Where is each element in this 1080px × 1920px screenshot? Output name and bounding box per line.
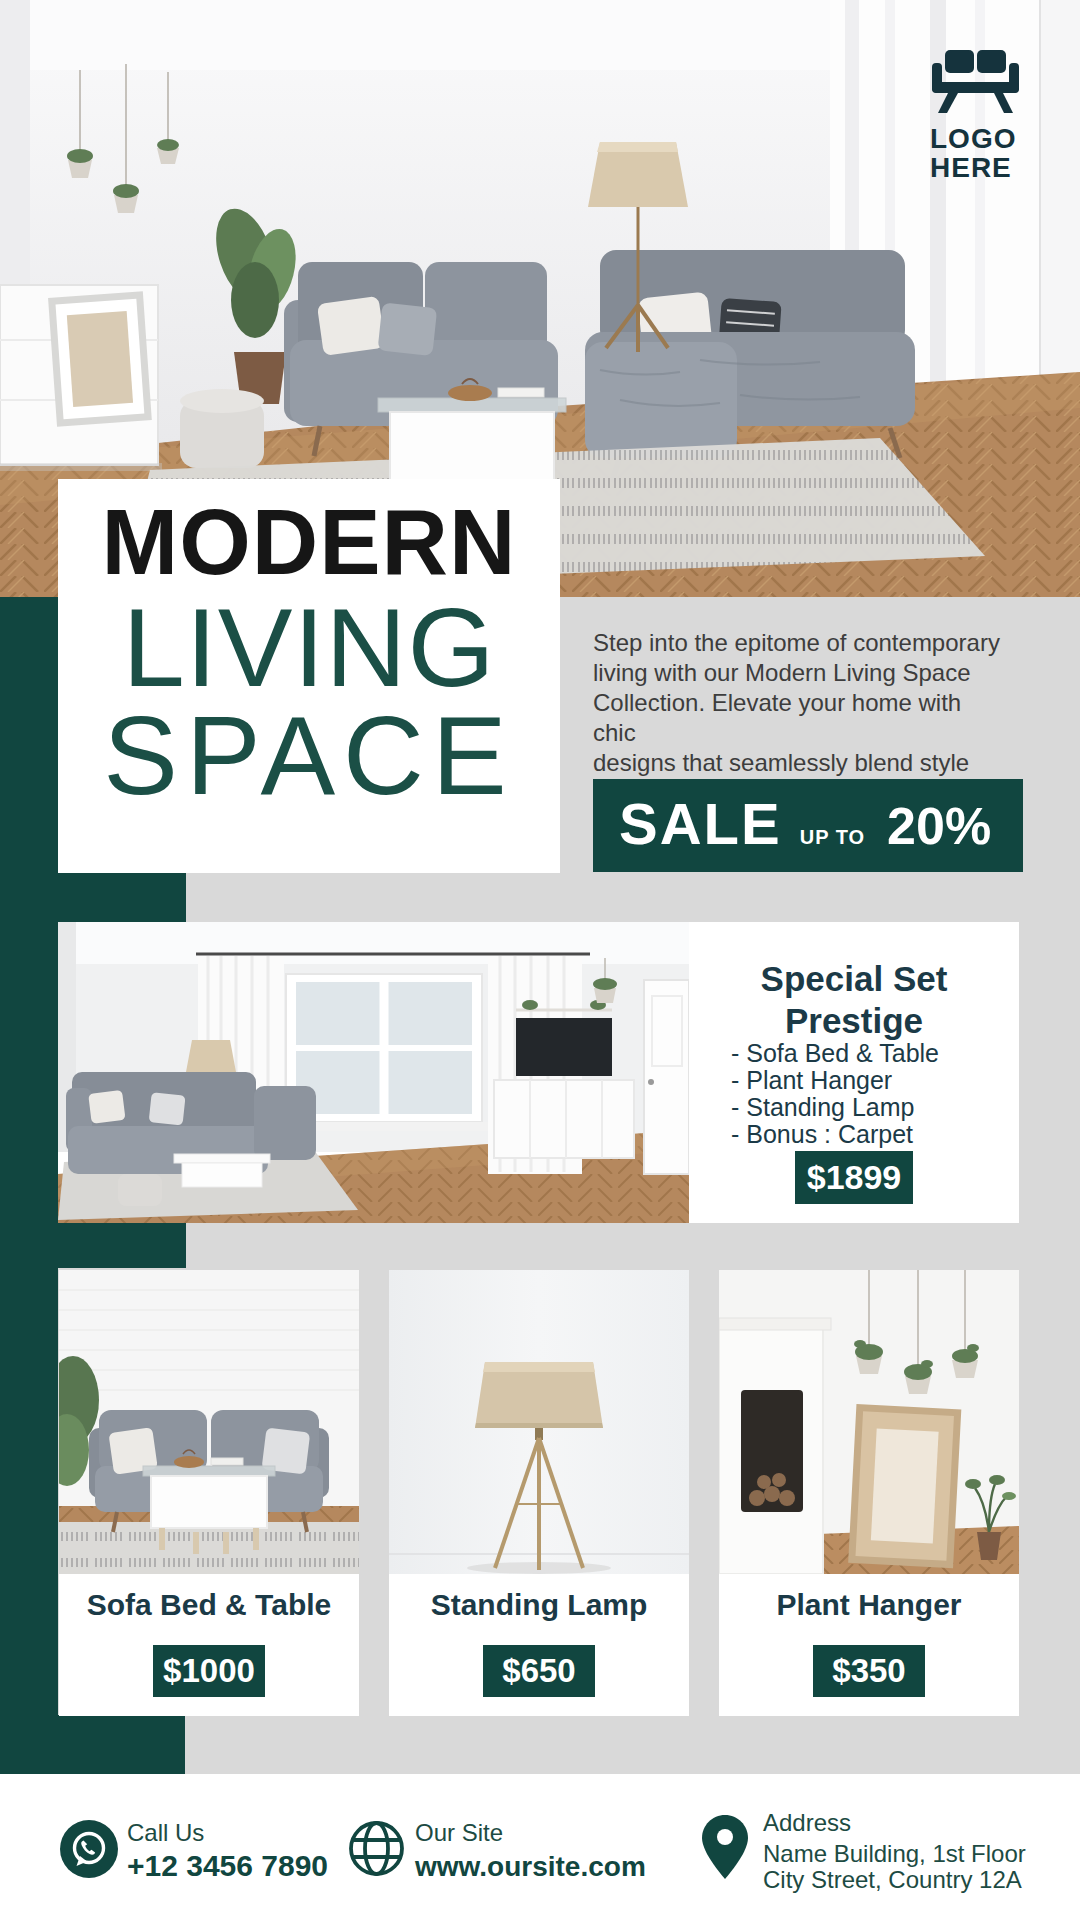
sale-qualifier: UP TO	[800, 826, 865, 849]
product-price-badge: $650	[483, 1645, 595, 1697]
special-set-item: - Standing Lamp	[731, 1094, 914, 1121]
product-lamp-image	[389, 1270, 689, 1574]
site-value: www.oursite.com	[415, 1851, 646, 1883]
page-title-line2: LIVING	[58, 592, 560, 704]
special-set-card: Special Set Prestige - Sofa Bed & Table …	[58, 922, 1019, 1223]
product-hanger-image	[719, 1270, 1019, 1574]
title-box: MODERN LIVING SPACE	[58, 479, 560, 873]
page-title-line1: MODERN	[58, 496, 560, 588]
product-card-hanger: Plant Hanger $350	[719, 1270, 1019, 1716]
special-set-item: - Plant Hanger	[731, 1067, 892, 1094]
site-label: Our Site	[415, 1819, 503, 1847]
product-sofa-image	[59, 1270, 359, 1574]
logo-sofa-icon	[930, 50, 1022, 114]
product-card-sofa: Sofa Bed & Table $1000	[59, 1270, 359, 1716]
special-set-item: - Bonus : Carpet	[731, 1121, 913, 1148]
logo: LOGO HERE	[930, 50, 1050, 182]
special-set-item: - Sofa Bed & Table	[731, 1040, 939, 1067]
location-pin-icon	[702, 1815, 748, 1879]
page-title-line3: SPACE	[58, 700, 560, 812]
special-set-room-image	[58, 922, 689, 1223]
special-set-title: Special Set Prestige	[689, 958, 1019, 1042]
logo-text-line1: LOGO	[930, 124, 1050, 153]
address-label: Address	[763, 1809, 851, 1837]
product-name: Standing Lamp	[389, 1588, 689, 1622]
sale-label: SALE	[619, 795, 782, 853]
product-name: Plant Hanger	[719, 1588, 1019, 1622]
address-line2: City Street, Country 12A	[763, 1867, 1022, 1893]
call-label: Call Us	[127, 1819, 204, 1847]
product-price-badge: $350	[813, 1645, 925, 1697]
product-price-badge: $1000	[153, 1645, 265, 1697]
bottom-accent-block	[0, 1715, 185, 1774]
call-value: +12 3456 7890	[127, 1849, 328, 1883]
special-set-panel: Special Set Prestige - Sofa Bed & Table …	[689, 922, 1019, 1223]
address-line1: Name Building, 1st Floor	[763, 1841, 1026, 1867]
sale-banner: SALE UP TO 20%	[593, 779, 1023, 872]
globe-icon	[348, 1820, 405, 1877]
sale-amount: 20%	[887, 800, 991, 852]
product-name: Sofa Bed & Table	[59, 1588, 359, 1622]
flyer-root: LOGO HERE MODERN LIVING SPACE Step into …	[0, 0, 1080, 1920]
product-card-lamp: Standing Lamp $650	[389, 1270, 689, 1716]
special-set-price-badge: $1899	[795, 1151, 913, 1204]
whatsapp-icon	[60, 1820, 118, 1878]
logo-text-line2: HERE	[930, 153, 1050, 182]
